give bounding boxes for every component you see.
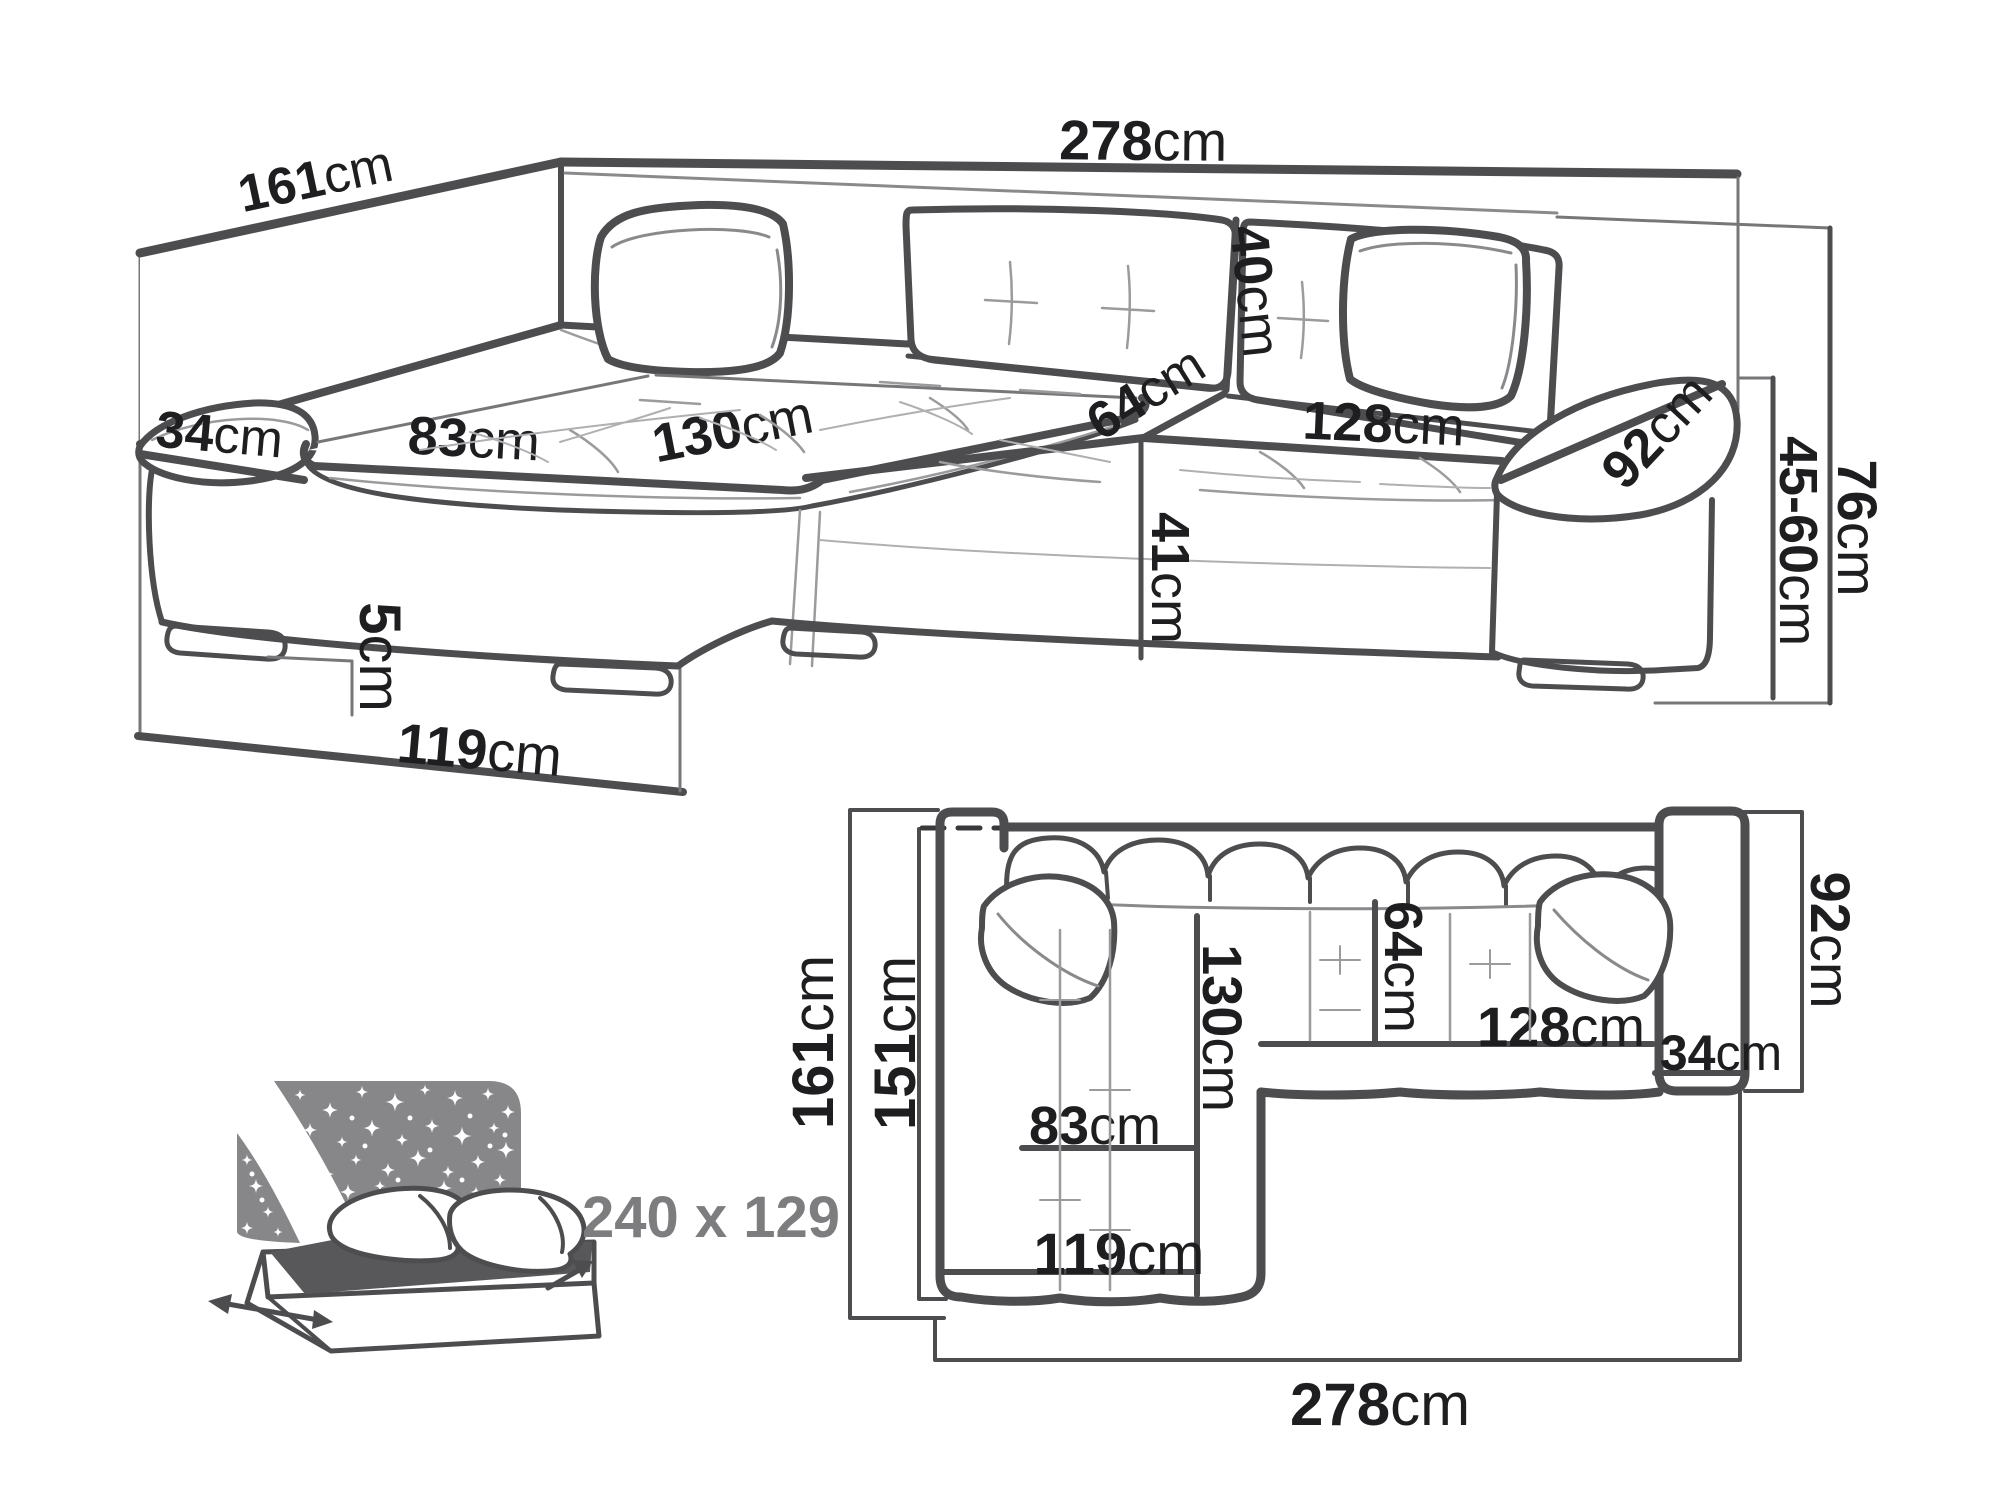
svg-text:278cm: 278cm <box>1290 1371 1470 1438</box>
svg-text:92cm: 92cm <box>1799 872 1862 1009</box>
svg-text:151cm: 151cm <box>863 956 928 1130</box>
svg-text:161cm: 161cm <box>781 955 846 1129</box>
svg-text:5cm: 5cm <box>347 602 412 712</box>
svg-text:240 x 129: 240 x 129 <box>582 1185 840 1250</box>
svg-text:83cm: 83cm <box>406 406 541 473</box>
svg-text:41cm: 41cm <box>1140 512 1200 644</box>
svg-text:128cm: 128cm <box>1477 995 1645 1058</box>
svg-text:34cm: 34cm <box>154 401 286 470</box>
svg-text:119cm: 119cm <box>395 711 565 788</box>
svg-text:83cm: 83cm <box>1029 1096 1161 1156</box>
svg-text:76cm: 76cm <box>1826 460 1889 597</box>
svg-text:34cm: 34cm <box>1660 1025 1782 1081</box>
svg-text:45-60cm: 45-60cm <box>1768 436 1828 646</box>
svg-text:64cm: 64cm <box>1373 901 1433 1033</box>
svg-text:130cm: 130cm <box>1191 944 1254 1112</box>
svg-text:128cm: 128cm <box>1302 391 1467 458</box>
svg-text:278cm: 278cm <box>1059 108 1228 172</box>
